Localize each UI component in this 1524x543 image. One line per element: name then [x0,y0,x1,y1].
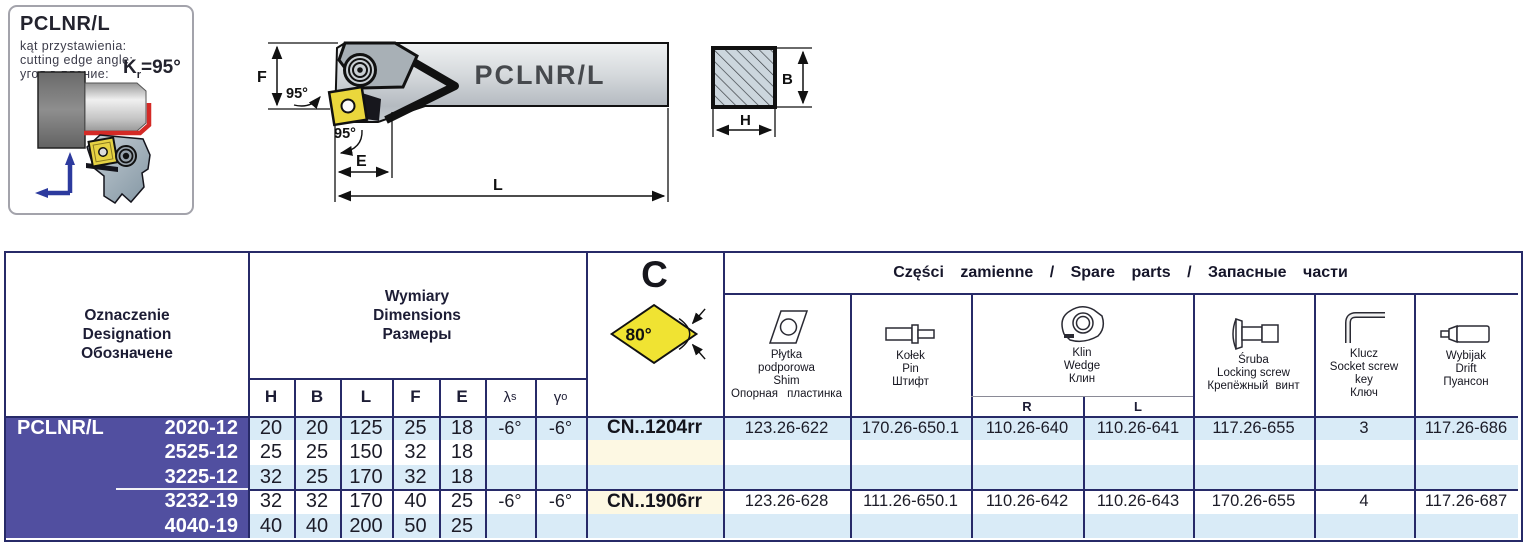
key-header: KluczSocket screwkeyКлюч [1314,293,1414,416]
shank-section-drawing: B H [700,25,880,170]
cell-f: 25 [392,416,439,440]
col-header-b: B [294,378,340,416]
insert-header: C 80° [586,253,723,416]
cell-h: 32 [248,489,294,514]
dim-f-label: F [257,69,267,86]
tool-family-title: PCLNR/L [20,13,110,36]
feed-direction-arrow [35,152,75,198]
cell-screw: 170.26-655 [1193,489,1314,514]
angle-caption-en: cutting edge angle: [20,53,133,67]
insert-shape-letter: C [586,255,723,295]
cell-h: 25 [248,440,294,465]
cell-pin: 111.26-650.1 [850,489,971,514]
size-label: 3225-12 [165,465,238,489]
cell-b: 25 [294,440,340,465]
cell-shim: 123.26-628 [723,489,850,514]
pin-icon [884,321,938,347]
cell-f: 32 [392,440,439,465]
pin-header: KołekPinШтифт [850,293,971,416]
drift-icon [1439,321,1493,347]
cell-wedge-l: 110.26-641 [1083,416,1193,440]
col-header-h: H [248,378,294,416]
dimensions-header: Wymiary Dimensions Размеры [248,253,586,378]
insert-hole [341,99,356,114]
cell-key: 3 [1314,416,1414,440]
shim-icon [762,308,812,346]
svg-text:80°: 80° [626,325,652,345]
cell-drift: 117.26-686 [1414,416,1518,440]
catalog-table: PCLNR/L 2020-12 2525-12 3225-12 3232-19 … [4,251,1523,542]
cell-l: 150 [340,440,392,465]
angle-95-bottom-label: 95° [334,126,356,142]
cell-f: 50 [392,514,439,538]
wedge-l-subheader: L [1083,396,1193,416]
cell-gamma: -6° [535,416,586,440]
cell-lambda: -6° [485,489,535,514]
cell-wedge-l: 110.26-643 [1083,489,1193,514]
chuck-shape [38,72,85,148]
cell-h: 32 [248,465,294,489]
toolholder-dimension-drawing: PCLNR/L F 95° 95° E L [250,20,690,220]
cell-h: 20 [248,416,294,440]
cell-l: 170 [340,489,392,514]
angle-95-top-label: 95° [286,86,308,102]
wedge-header: KlinWedgeКлин [971,293,1193,396]
cell-h: 40 [248,514,294,538]
cell-lambda: -6° [485,416,535,440]
dim-e-label: E [356,153,367,170]
col-header-f: F [392,378,439,416]
hex-key-icon [1340,309,1388,345]
wedge-icon [1056,304,1108,344]
insert-80deg-diamond-icon: 80° [602,295,708,373]
locking-screw-icon [1228,317,1280,351]
dim-h-label: H [740,112,751,129]
dim-b-label: B [782,71,793,88]
cell-gamma: -6° [535,489,586,514]
col-header-l: L [340,378,392,416]
cell-b: 20 [294,416,340,440]
dim-l-label: L [493,177,503,194]
cell-f: 40 [392,489,439,514]
wedge-r-subheader: R [971,396,1083,416]
cell-shim: 123.26-622 [723,416,850,440]
cell-f: 32 [392,465,439,489]
section-square [713,48,775,107]
size-label: 2525-12 [165,440,238,465]
group-separator-white [116,488,248,490]
col-header-gamma-o: γo [535,378,586,416]
catalog-page: PCLNR/L kąt przystawienia: cutting edge … [0,0,1524,543]
insert-col-shading [586,440,723,465]
cell-b: 25 [294,465,340,489]
size-label: 2020-12 [165,416,238,440]
col-header-e: E [439,378,485,416]
size-label: 4040-19 [165,514,238,538]
designation-header: Oznaczenie Designation Обозначене [6,253,248,416]
turning-operation-pictogram [18,69,190,211]
shim-header: PłytkapodporowaShimОпорная пластинка [723,293,850,416]
cell-l: 125 [340,416,392,440]
designation-column: PCLNR/L 2020-12 2525-12 3225-12 3232-19 … [6,416,248,538]
col-header-lambda-s: λs [485,378,535,416]
cell-wedge-r: 110.26-640 [971,416,1083,440]
cell-b: 32 [294,489,340,514]
insert-hole [98,147,108,157]
tool-info-box: PCLNR/L kąt przystawienia: cutting edge … [8,5,194,215]
cell-e: 25 [439,489,485,514]
cell-insert: CN..1204rr [586,416,723,440]
cell-e: 25 [439,514,485,538]
tool-model-label: PCLNR/L [475,60,606,90]
cell-e: 18 [439,465,485,489]
cell-key: 4 [1314,489,1414,514]
cell-pin: 170.26-650.1 [850,416,971,440]
family-label: PCLNR/L [17,416,104,440]
cell-screw: 117.26-655 [1193,416,1314,440]
cell-e: 18 [439,440,485,465]
cell-wedge-r: 110.26-642 [971,489,1083,514]
size-label: 3232-19 [165,489,238,514]
cell-l: 170 [340,465,392,489]
drift-header: WybijakDriftПуансон [1414,293,1518,416]
cell-e: 18 [439,416,485,440]
workpiece-shape [85,83,146,131]
screw-header: ŚrubaLocking screwКрепёжный винт [1193,293,1314,416]
spare-parts-title: Części zamienne / Spare parts / Запасные… [723,253,1518,293]
cell-b: 40 [294,514,340,538]
cell-insert: CN..1906rr [586,489,723,514]
cell-drift: 117.26-687 [1414,489,1518,514]
angle-caption-pl: kąt przystawienia: [20,39,127,53]
cell-l: 200 [340,514,392,538]
